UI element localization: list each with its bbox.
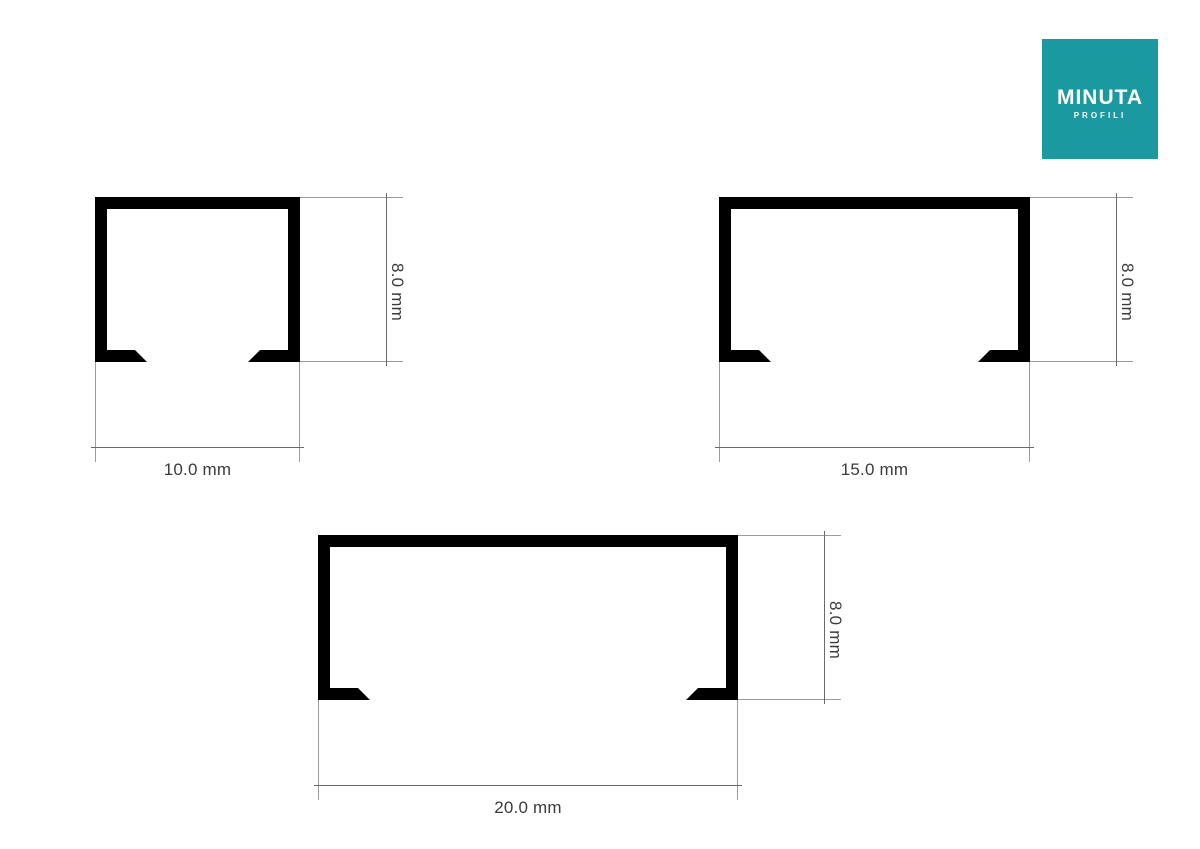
width-dimension-label: 10.0 mm [95, 460, 300, 480]
figure-profile-15mm: 8.0 mm 15.0 mm [719, 197, 1030, 362]
channel-profile-shape [95, 197, 300, 362]
width-dimension-label: 15.0 mm [719, 460, 1030, 480]
channel-profile-shape [318, 535, 738, 700]
height-dimension-label: 8.0 mm [1117, 252, 1137, 332]
minuta-logo: MINUTA PROFILI [1042, 39, 1158, 159]
width-dimension-label: 20.0 mm [318, 798, 738, 818]
logo-wordmark: MINUTA [1057, 87, 1143, 108]
channel-profile-shape [719, 197, 1030, 362]
logo-subtitle: PROFILI [1074, 112, 1127, 120]
figure-profile-10mm: 8.0 mm 10.0 mm [95, 197, 300, 362]
profile-cross-section-drawing [719, 197, 1030, 362]
height-dimension-label: 8.0 mm [387, 252, 407, 332]
canvas: MINUTA PROFILI 8.0 mm 10.0 mm 8.0 mm 15.… [0, 0, 1200, 849]
profile-cross-section-drawing [95, 197, 300, 362]
profile-cross-section-drawing [318, 535, 738, 700]
figure-profile-20mm: 8.0 mm 20.0 mm [318, 535, 738, 700]
height-dimension-label: 8.0 mm [825, 590, 845, 670]
